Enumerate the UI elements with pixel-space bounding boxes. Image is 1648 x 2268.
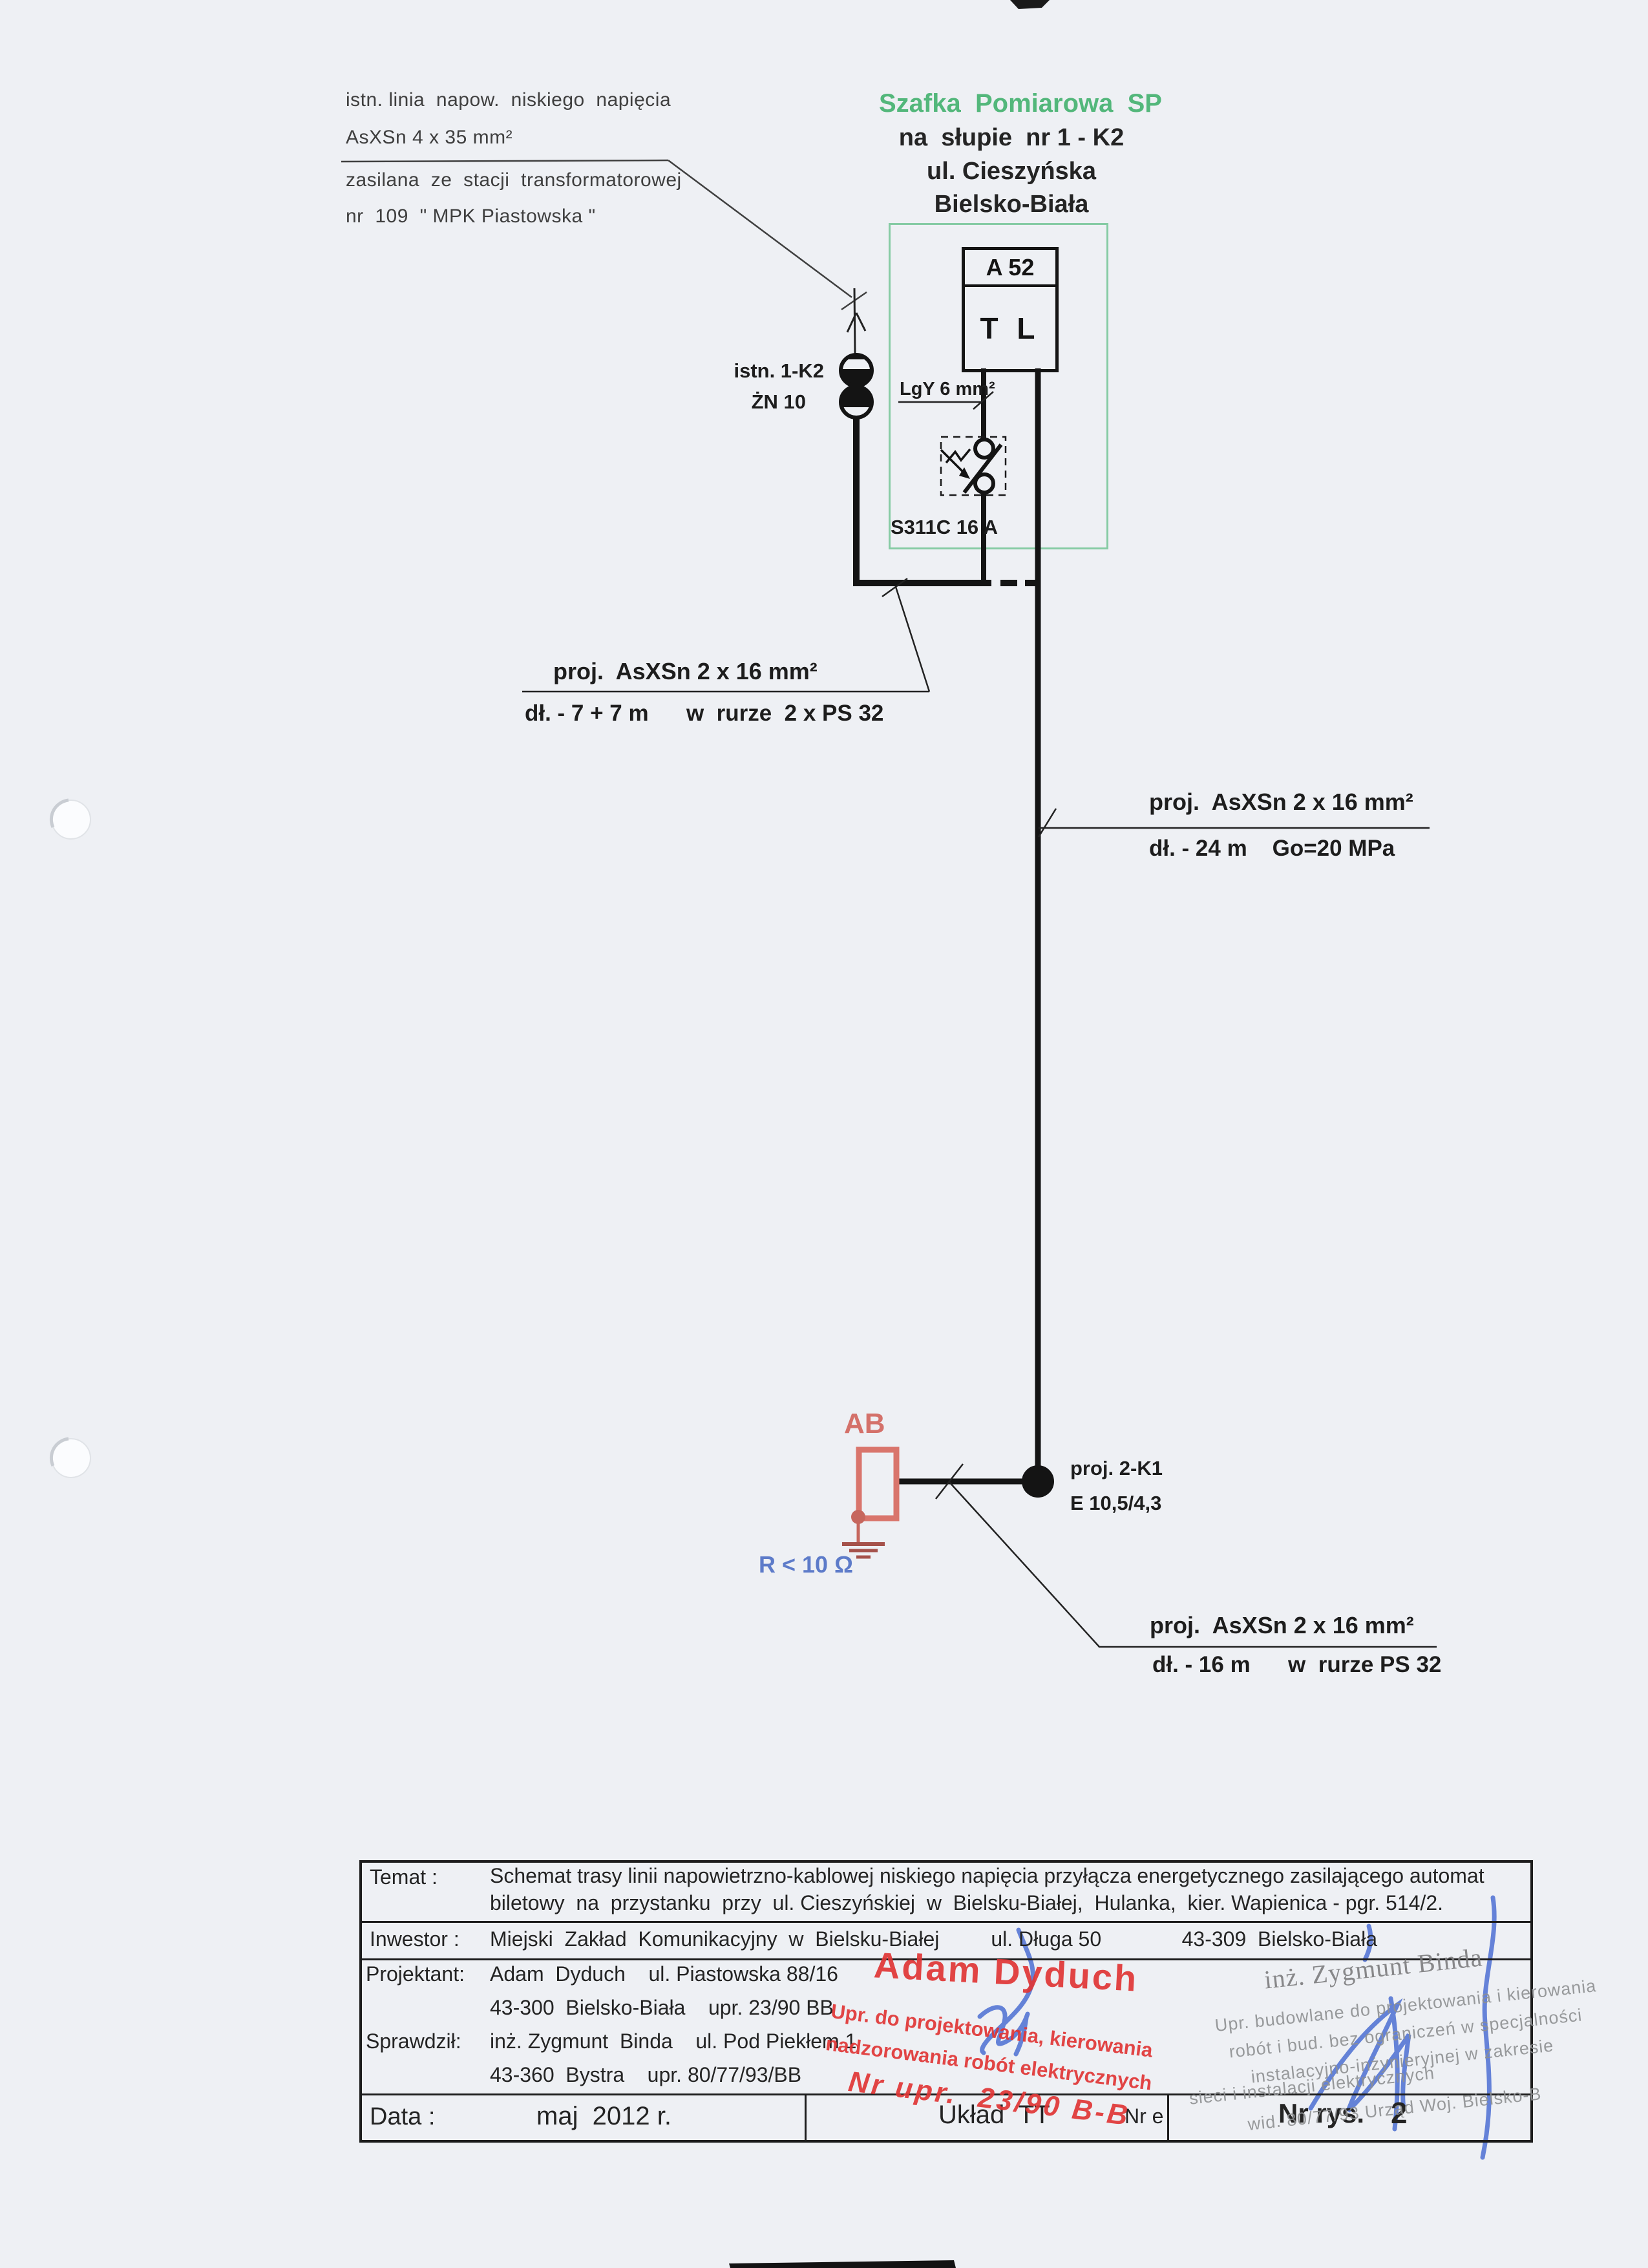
cabinet-subtitle-3: Bielsko-Biała [879,191,1144,218]
segment3-cable: proj. AsXSn 2 x 16 mm² [1150,1612,1414,1639]
temat-line2: biletowy na przystanku przy ul. Cieszyńs… [490,1891,1443,1915]
existing-line-note-1: istn. linia napow. niskiego napięcia [346,89,671,111]
projektant-line2: 43-300 Bielsko-Biała upr. 23/90 BB [490,1996,834,2020]
breaker-label: S311C 16 A [891,516,998,539]
sprawdzil-line2: 43-360 Bystra upr. 80/77/93/BB [490,2063,801,2087]
ticket-machine-label: AB [844,1408,885,1440]
data-label: Data : [370,2103,435,2131]
punch-hole [51,800,90,839]
sprawdzil-label: Sprawdził: [366,2030,461,2053]
cabinet-subtitle-2: ul. Cieszyńska [879,158,1144,185]
pole-label-1: istn. 1-K2 [708,359,824,383]
new-pole-label-1: proj. 2-K1 [1070,1457,1163,1480]
punch-hole [51,1439,90,1478]
projektant-line1: Adam Dyduch ul. Piastowska 88/16 [490,1962,838,1986]
pole-symbol-top [840,354,873,387]
existing-line-note-2: AsXSn 4 x 35 mm² [346,127,512,149]
scanned-schematic-page: A 52 T L [0,0,1648,2268]
temat-label: Temat : [370,1865,438,1889]
scan-artifact [1010,0,1050,9]
cabinet-title: Szafka Pomiarowa SP [879,89,1144,118]
meter-type: T L [965,287,1055,369]
segment1-cable: proj. AsXSn 2 x 16 mm² [553,658,818,685]
meter-cable-label: LgY 6 mm² [900,379,995,400]
pole-label-2: ŻN 10 [708,390,806,414]
segment3-length: dł. - 16 m w rurze PS 32 [1152,1652,1441,1678]
meter-id: A 52 [965,250,1055,287]
segment2-cable: proj. AsXSn 2 x 16 mm² [1149,789,1413,816]
segment2-length: dł. - 24 m Go=20 MPa [1149,836,1395,862]
new-pole-label-2: E 10,5/4,3 [1070,1492,1161,1515]
cabinet-subtitle-1: na słupie nr 1 - K2 [879,124,1144,152]
earth-resistance-label: R < 10 Ω [759,1551,853,1578]
data-value: maj 2012 r. [536,2102,671,2131]
ticket-machine-symbol [859,1450,896,1518]
junction-dot [1022,1465,1054,1498]
projektant-label: Projektant: [366,1962,465,1986]
inwestor-label: Inwestor : [370,1927,460,1951]
segment1-length: dł. - 7 + 7 m w rurze 2 x PS 32 [525,701,883,726]
existing-line-note-3: zasilana ze stacji transformatorowej [346,169,682,191]
temat-line1: Schemat trasy linii napowietrzno-kablowe… [490,1864,1484,1888]
scan-artifact [729,2260,956,2268]
sprawdzil-line1: inż. Zygmunt Binda ul. Pod Piekłem 1 [490,2030,856,2053]
pole-symbol-bottom [840,385,873,419]
meter-box: A 52 T L [962,247,1059,372]
existing-line-note-4: nr 109 " MPK Piastowska " [346,206,596,228]
